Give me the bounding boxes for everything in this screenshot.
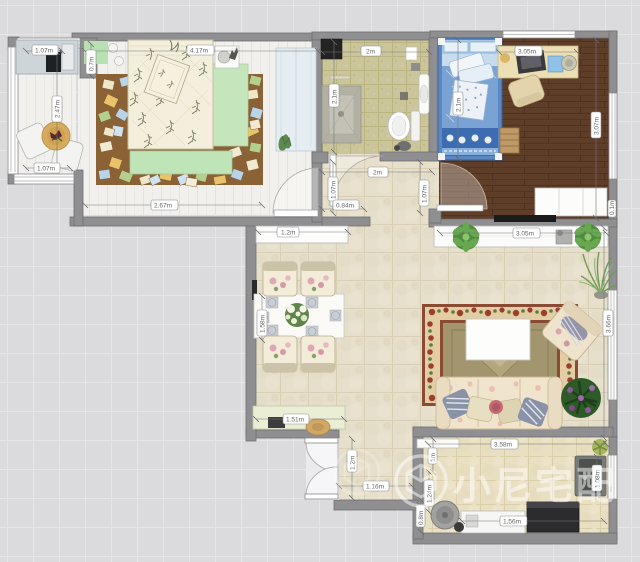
svg-text:0.1m: 0.1m: [609, 201, 616, 215]
svg-text:3.05m: 3.05m: [518, 49, 536, 56]
svg-text:2.1m: 2.1m: [456, 98, 463, 112]
svg-text:1.07m: 1.07m: [422, 185, 429, 203]
svg-text:2m: 2m: [366, 49, 375, 56]
svg-text:1.07m: 1.07m: [331, 181, 338, 199]
svg-text:1.2m: 1.2m: [281, 230, 295, 237]
svg-text:1.07m: 1.07m: [35, 48, 53, 55]
svg-text:4.17m: 4.17m: [190, 48, 208, 55]
svg-text:3.07m: 3.07m: [594, 117, 601, 135]
svg-text:2.67m: 2.67m: [154, 203, 172, 210]
svg-text:2.1m: 2.1m: [332, 90, 339, 104]
svg-text:3.05m: 3.05m: [516, 231, 534, 238]
svg-text:1.51m: 1.51m: [286, 417, 304, 424]
svg-text:3.66m: 3.66m: [606, 315, 613, 333]
svg-text:3.58m: 3.58m: [494, 442, 512, 449]
svg-text:0.7m: 0.7m: [89, 57, 96, 71]
svg-text:小尼宅配: 小尼宅配: [453, 465, 617, 508]
svg-text:2m: 2m: [373, 170, 382, 177]
svg-text:0.84m: 0.84m: [336, 203, 354, 210]
svg-text:2.47m: 2.47m: [55, 100, 62, 118]
svg-text:1.56m: 1.56m: [503, 519, 521, 526]
svg-text:0.8m: 0.8m: [418, 511, 425, 525]
svg-text:1.07m: 1.07m: [37, 166, 55, 173]
svg-text:1.58m: 1.58m: [260, 315, 267, 333]
